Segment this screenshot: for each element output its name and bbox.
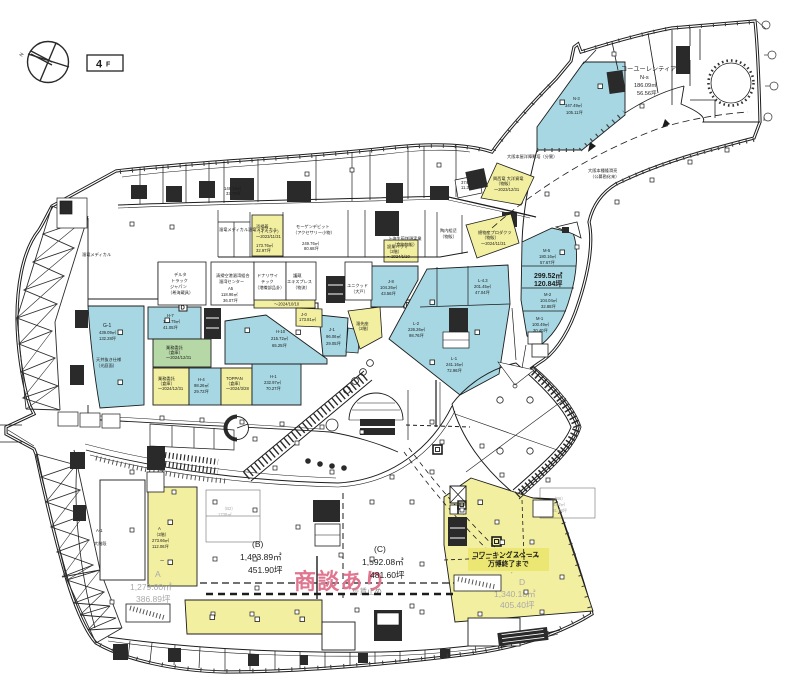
svg-text:180.16㎡: 180.16㎡ <box>539 253 557 259</box>
svg-text:モーゲンデビット: モーゲンデビット <box>296 223 330 230</box>
svg-text:201.45㎡: 201.45㎡ <box>474 283 492 289</box>
svg-text:（B2）: （B2） <box>222 506 236 511</box>
svg-text:299.52㎡: 299.52㎡ <box>534 271 562 280</box>
svg-text:〜: 〜 <box>160 558 164 563</box>
svg-text:96.06㎡: 96.06㎡ <box>326 333 341 339</box>
svg-text:湄竜メディカル: 湄竜メディカル <box>82 251 111 258</box>
svg-text:4: 4 <box>96 59 103 71</box>
svg-text:万博終了まで: 万博終了まで <box>487 559 529 568</box>
svg-text:（公募勘化来）: （公募勘化来） <box>590 173 619 180</box>
svg-text:226.26㎡: 226.26㎡ <box>408 326 426 332</box>
svg-text:M-2: M-2 <box>544 292 552 297</box>
svg-text:56.56坪: 56.56坪 <box>637 89 657 97</box>
svg-text:241.16㎡: 241.16㎡ <box>446 361 464 367</box>
svg-text:湄竜メディカル: 湄竜メディカル <box>219 226 248 233</box>
svg-text:41.05坪: 41.05坪 <box>163 324 178 331</box>
svg-text:M-1: M-1 <box>536 316 544 321</box>
svg-text:1,592.08㎡: 1,592.08㎡ <box>362 557 404 567</box>
svg-text:215.72㎡: 215.72㎡ <box>271 335 289 341</box>
svg-text:(C): (C) <box>374 544 386 554</box>
svg-text:481.60坪: 481.60坪 <box>370 570 405 580</box>
svg-text:105.11坪: 105.11坪 <box>566 109 583 116</box>
svg-text:100.49㎡: 100.49㎡ <box>532 321 550 327</box>
svg-text:173.81㎡: 173.81㎡ <box>299 316 317 322</box>
svg-text:405.40坪: 405.40坪 <box>500 600 535 610</box>
svg-text:1738㎡: 1738㎡ <box>218 511 232 517</box>
svg-text:大阪本屋洋陣難塔（分窠）: 大阪本屋洋陣難塔（分窠） <box>507 153 557 160</box>
svg-text:（食物物販）: （食物物販） <box>392 241 417 248</box>
svg-text:（物販）: （物販） <box>440 233 457 240</box>
svg-text:1,279.00㎡: 1,279.00㎡ <box>130 582 172 592</box>
svg-text:（大戸）: （大戸） <box>351 288 368 295</box>
svg-text:104.04㎡: 104.04㎡ <box>540 297 558 303</box>
svg-text:J-1: J-1 <box>329 327 335 332</box>
svg-text:（2階）: （2階） <box>154 531 169 538</box>
svg-text:湄竜メディカル: 湄竜メディカル <box>248 226 277 233</box>
svg-text:386.89坪: 386.89坪 <box>136 594 171 604</box>
svg-text:112.06坪: 112.06坪 <box>152 543 169 550</box>
svg-text:A: A <box>155 569 161 579</box>
svg-text:〜2024/10/10: 〜2024/10/10 <box>274 302 300 307</box>
svg-text:大阪本種隆滑亮: 大阪本種隆滑亮 <box>588 167 617 174</box>
svg-text:H-1: H-1 <box>270 374 277 379</box>
svg-text:護蔵: 護蔵 <box>293 272 302 279</box>
svg-text:N-s: N-s <box>640 75 649 81</box>
svg-text:A5: A5 <box>228 286 234 291</box>
svg-text:120.84坪: 120.84坪 <box>534 279 562 288</box>
svg-text:47.04坪: 47.04坪 <box>475 289 490 296</box>
svg-text:〜2024/3/28: 〜2024/3/28 <box>226 386 249 391</box>
svg-text:〜2023/11/31: 〜2023/11/31 <box>256 234 282 239</box>
svg-text:〜2024/12/31: 〜2024/12/31 <box>166 355 192 360</box>
svg-text:232.97㎡: 232.97㎡ <box>264 379 282 385</box>
svg-text:80.68坪: 80.68坪 <box>304 245 319 252</box>
svg-text:H-7: H-7 <box>167 313 174 318</box>
svg-text:コワーキングスペース: コワーキングスペース <box>472 550 539 559</box>
svg-text:〜2024/11/31: 〜2024/11/31 <box>481 241 507 246</box>
svg-text:A-1: A-1 <box>96 528 103 533</box>
svg-text:132.28坪: 132.28坪 <box>99 335 116 342</box>
svg-text:186.09㎡: 186.09㎡ <box>634 81 657 89</box>
svg-text:32.88坪: 32.88坪 <box>541 303 556 310</box>
svg-text:65.25坪: 65.25坪 <box>272 342 287 349</box>
svg-text:347.49㎡: 347.49㎡ <box>565 102 583 108</box>
svg-text:N-3: N-3 <box>573 96 580 101</box>
svg-text:29.05坪: 29.05坪 <box>326 340 341 347</box>
svg-text:32.97坪: 32.97坪 <box>256 247 271 254</box>
svg-text:デルタ: デルタ <box>174 271 187 278</box>
svg-text:清掃空港湄湾組合: 清掃空港湄湾組合 <box>216 272 250 279</box>
svg-text:273.66㎡: 273.66㎡ <box>152 537 170 543</box>
svg-text:（アクセサリー小物）: （アクセサリー小物） <box>293 229 335 236</box>
svg-text:コーユーレンティア: コーユーレンティア <box>621 66 676 73</box>
svg-text:H-10: H-10 <box>276 329 286 334</box>
svg-text:M-5: M-5 <box>543 248 551 253</box>
svg-text:湄湾センター: 湄湾センター <box>219 278 244 285</box>
svg-text:（希海蔵具）: （希海蔵具） <box>168 289 193 296</box>
svg-text:(B): (B) <box>252 539 264 549</box>
svg-text:ジャパン: ジャパン <box>170 284 187 289</box>
svg-text:（B6）: （B6） <box>552 496 566 501</box>
svg-text:L-1: L-1 <box>451 356 458 361</box>
svg-text:70.27坪: 70.27坪 <box>266 385 281 392</box>
svg-text:104.26㎡: 104.26㎡ <box>380 284 398 290</box>
svg-text:F: F <box>106 62 111 69</box>
svg-text:L-4.3: L-4.3 <box>478 278 488 283</box>
svg-text:A: A <box>158 526 161 531</box>
svg-text:陶内組乼: 陶内組乼 <box>440 227 457 234</box>
svg-text:（物販）: （物販） <box>482 234 499 241</box>
svg-text:118.96㎡: 118.96㎡ <box>221 291 238 297</box>
svg-text:G-1: G-1 <box>103 323 112 329</box>
svg-text:439.09㎡: 439.09㎡ <box>99 329 117 335</box>
svg-text:D: D <box>181 306 186 312</box>
svg-text:（2階）: （2階） <box>356 325 371 332</box>
svg-text:〜2023/12/31: 〜2023/12/31 <box>494 187 520 192</box>
svg-text:L-2: L-2 <box>413 321 420 326</box>
svg-text:大階段: 大階段 <box>94 540 107 547</box>
svg-text:上海生煎饼頭実業: 上海生煎饼頭実業 <box>388 235 422 242</box>
svg-text:1,493.89㎡: 1,493.89㎡ <box>240 552 282 562</box>
svg-text:36.07坪: 36.07坪 <box>223 297 238 304</box>
svg-text:J-8: J-8 <box>388 279 394 284</box>
svg-text:43.56坪: 43.56坪 <box>381 290 396 297</box>
svg-text:451.90坪: 451.90坪 <box>248 565 283 575</box>
svg-text:D: D <box>519 577 525 587</box>
svg-text:29.72坪: 29.72坪 <box>194 388 209 395</box>
svg-text:H-4: H-4 <box>198 377 205 382</box>
svg-text:〜2024/12/31: 〜2024/12/31 <box>158 386 184 391</box>
svg-text:（光庭面）: （光庭面） <box>96 362 117 369</box>
svg-text:98.76坪: 98.76坪 <box>409 332 424 339</box>
svg-text:（物販）: （物販） <box>496 180 513 187</box>
svg-text:天井抜き仕様: 天井抜き仕様 <box>96 356 122 363</box>
svg-text:（港織部品卦）: （港織部品卦） <box>255 284 284 291</box>
svg-text:33.70坪: 33.70坪 <box>226 190 241 197</box>
svg-text:72.96坪: 72.96坪 <box>447 367 462 374</box>
svg-text:98.26㎡: 98.26㎡ <box>194 382 209 388</box>
svg-text:（物流）: （物流） <box>293 284 310 291</box>
svg-text:57.67坪: 57.67坪 <box>540 259 555 266</box>
